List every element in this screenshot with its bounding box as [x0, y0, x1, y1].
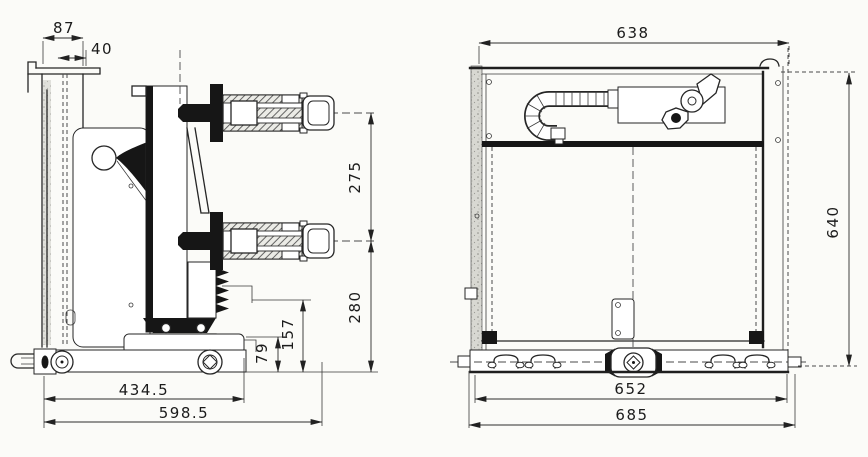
- base-trolley-right: [450, 348, 806, 377]
- axle-end-left: [458, 356, 470, 367]
- dim-label-79: 79: [253, 342, 271, 364]
- support-arm: [187, 128, 209, 213]
- dim-label-685: 685: [615, 406, 648, 424]
- front-view: 638 640 652 685: [450, 24, 857, 428]
- dim-label-275: 275: [346, 160, 364, 193]
- flexible-conduit: [524, 90, 620, 144]
- dim-label-640: 640: [824, 205, 842, 238]
- technical-drawing-page: 87 40 275 280 157 79 434.5: [0, 0, 868, 457]
- base-trolley-left: [11, 349, 378, 374]
- dimension-157: 157: [279, 300, 303, 372]
- latch-pin: [671, 113, 681, 123]
- operating-box: [618, 74, 725, 129]
- dimension-275: 275: [346, 113, 371, 241]
- dimension-drawing: 87 40 275 280 157 79 434.5: [0, 0, 868, 457]
- dimension-87: 87: [43, 19, 83, 66]
- dim-label-652: 652: [614, 380, 647, 398]
- dim-label-87: 87: [53, 19, 75, 37]
- side-view: 87 40 275 280 157 79 434.5: [11, 19, 378, 428]
- upper-terminal-bushing: [178, 84, 378, 142]
- dimension-40: 40: [58, 40, 113, 66]
- dimension-79: 79: [253, 337, 278, 372]
- dim-label-157: 157: [279, 317, 297, 350]
- dim-label-280: 280: [346, 290, 364, 323]
- dimension-640: 640: [781, 72, 857, 366]
- dimension-638: 638: [479, 24, 789, 66]
- dim-label-40: 40: [91, 40, 113, 58]
- dim-label-638: 638: [616, 24, 649, 42]
- front-wheel: [51, 351, 73, 373]
- rear-wheel: [198, 350, 222, 374]
- pole-fins: [188, 262, 252, 318]
- dim-label-598-5: 598.5: [159, 404, 209, 422]
- interlock-plate: [612, 299, 634, 339]
- dimension-652: 652: [475, 374, 787, 403]
- lower-terminal-bushing: [178, 212, 378, 270]
- hook-slot: [42, 356, 49, 369]
- top-tab: [760, 59, 779, 66]
- pull-hook: [11, 354, 34, 368]
- dimension-280: 280: [346, 241, 371, 372]
- dim-label-434-5: 434.5: [119, 381, 169, 399]
